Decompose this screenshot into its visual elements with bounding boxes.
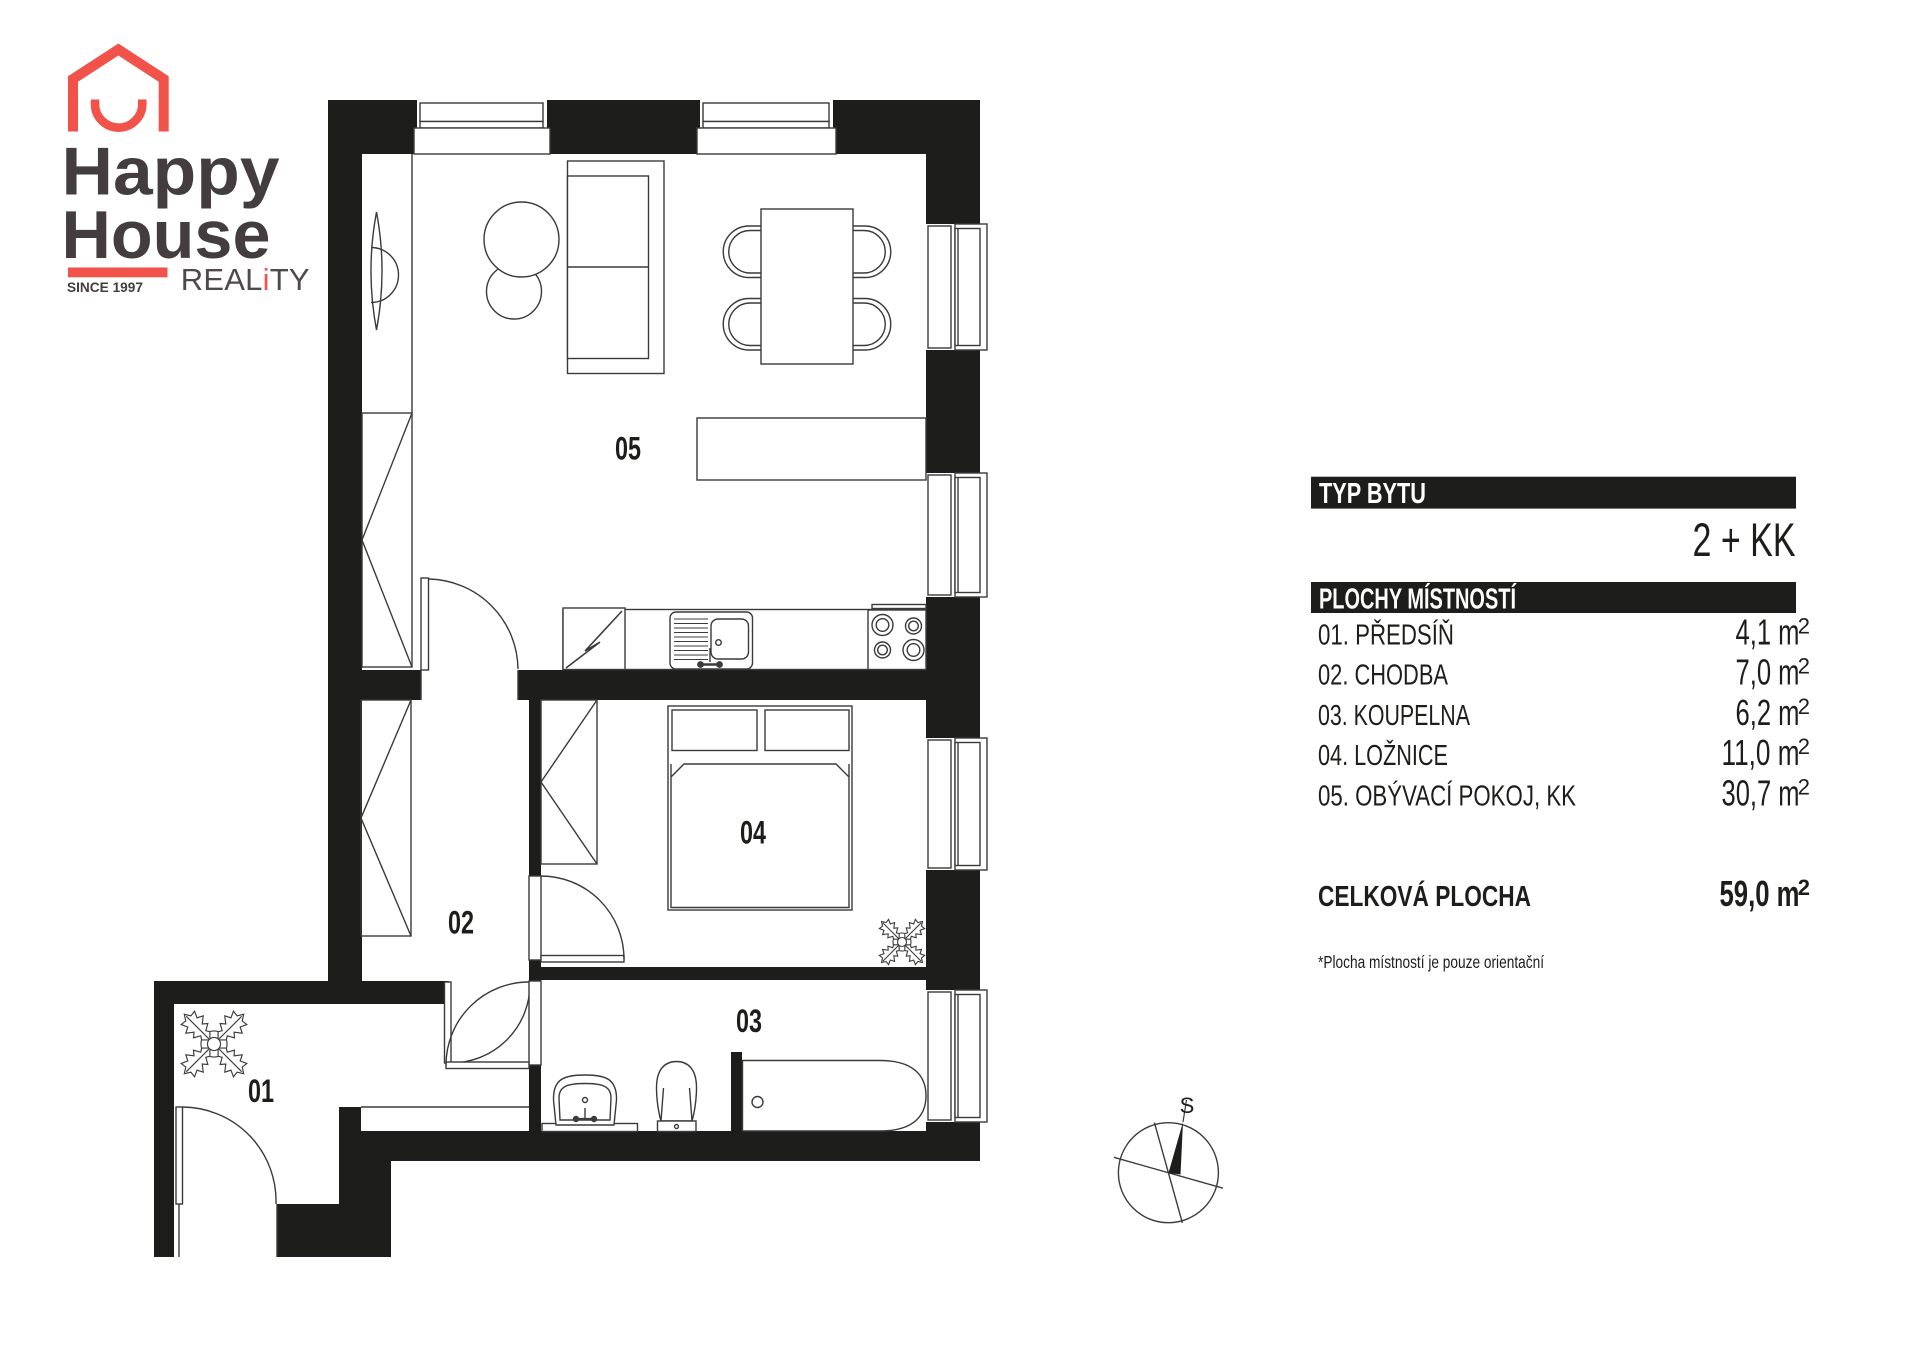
svg-text:04. LOŽNICE: 04. LOŽNICE — [1318, 739, 1448, 772]
svg-text:04: 04 — [740, 815, 766, 851]
svg-text:30,7 m: 30,7 m — [1722, 773, 1800, 814]
svg-text:02. CHODBA: 02. CHODBA — [1318, 660, 1448, 692]
svg-text:05: 05 — [615, 431, 641, 467]
svg-text:2: 2 — [1798, 875, 1810, 900]
svg-text:7,0 m: 7,0 m — [1736, 652, 1800, 693]
svg-text:02: 02 — [448, 905, 474, 941]
svg-text:*Plocha místností je pouze ori: *Plocha místností je pouze orientační — [1318, 952, 1544, 972]
svg-text:03. KOUPELNA: 03. KOUPELNA — [1318, 700, 1470, 732]
svg-text:03: 03 — [736, 1003, 762, 1039]
svg-text:05. OBÝVACÍ POKOJ, KK: 05. OBÝVACÍ POKOJ, KK — [1318, 780, 1576, 813]
svg-text:2: 2 — [1798, 775, 1810, 800]
svg-text:2: 2 — [1798, 694, 1810, 719]
svg-text:59,0 m: 59,0 m — [1720, 873, 1800, 914]
svg-text:2: 2 — [1798, 654, 1810, 679]
svg-text:S: S — [1180, 1093, 1195, 1118]
svg-text:01: 01 — [248, 1073, 274, 1109]
svg-text:TYP BYTU: TYP BYTU — [1319, 478, 1426, 510]
svg-text:4,1 m: 4,1 m — [1736, 611, 1800, 652]
svg-text:CELKOVÁ PLOCHA: CELKOVÁ PLOCHA — [1318, 879, 1531, 913]
svg-text:REALiTY: REALiTY — [181, 262, 310, 297]
svg-text:2: 2 — [1798, 613, 1810, 638]
svg-text:11,0 m: 11,0 m — [1722, 732, 1800, 773]
svg-text:PLOCHY MÍSTNOSTÍ: PLOCHY MÍSTNOSTÍ — [1319, 582, 1517, 616]
svg-text:2 + KK: 2 + KK — [1693, 514, 1796, 567]
svg-text:01. PŘEDSÍŇ: 01. PŘEDSÍŇ — [1318, 618, 1454, 651]
svg-text:SINCE 1997: SINCE 1997 — [67, 280, 143, 295]
svg-text:2: 2 — [1798, 734, 1810, 759]
svg-text:6,2 m: 6,2 m — [1736, 692, 1800, 733]
